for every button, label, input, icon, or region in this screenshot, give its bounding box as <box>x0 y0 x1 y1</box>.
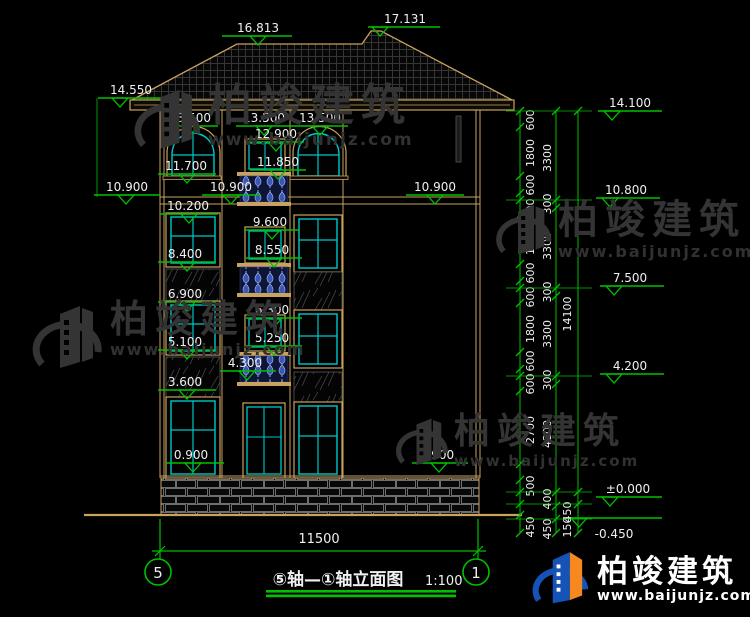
dim-chain-value: 500 <box>524 476 537 497</box>
elevation-marker-triangle <box>606 374 622 383</box>
elevation-marker-value: 6.900 <box>168 287 202 301</box>
elevation-marker-value: 10.200 <box>167 199 209 213</box>
elevation-marker-value: 3.600 <box>168 375 202 389</box>
roof <box>130 31 514 110</box>
dim-chain-value: 600 <box>524 199 537 220</box>
elevation-marker-value: 7.500 <box>613 271 647 285</box>
bottom-dim-label: 11500 <box>298 532 339 547</box>
brand-footer: 柏竣建筑 www.baijunjz.com <box>531 549 750 611</box>
dim-chain-value: 450 <box>541 519 554 540</box>
dim-chain-value: 300 <box>541 370 554 391</box>
dim-chain-value: 1800 <box>524 227 537 255</box>
elevation-marker-value: 8.550 <box>255 243 289 257</box>
stone-base <box>84 478 522 515</box>
elevation-marker-value: 13.500 <box>243 111 285 125</box>
dim-chain-value: 1800 <box>524 139 537 167</box>
elevation-marker-value: 5.100 <box>168 335 202 349</box>
elevation-marker-value: 16.813 <box>237 21 279 35</box>
dim-chain-value: 450 <box>524 517 537 538</box>
marble-panel <box>294 272 342 310</box>
elevation-marker-value: 13.500 <box>299 111 341 125</box>
dim-chain-value: 1800 <box>524 315 537 343</box>
elevation-marker-value: 8.400 <box>168 247 202 261</box>
dim-chain-value: 3300 <box>541 232 554 260</box>
brand-name: 柏竣建筑 <box>597 557 750 588</box>
elevation-marker-triangle <box>602 198 618 207</box>
elevation-marker-value: -0.450 <box>595 527 634 541</box>
dim-chain-value: 600 <box>524 374 537 395</box>
elevation-marker-triangle <box>223 195 239 204</box>
elevation-marker-value: 14.100 <box>609 96 651 110</box>
elevation-marker-value: 0.900 <box>420 448 454 462</box>
elevation-marker-value: 5.250 <box>255 331 289 345</box>
dim-chain-value: 3300 <box>541 144 554 172</box>
dim-chain-value: 300 <box>541 194 554 215</box>
elevation-marker-value: 14.550 <box>110 83 152 97</box>
dim-chain-value: 600 <box>524 110 537 131</box>
dim-chain-value: 14100 <box>561 297 574 332</box>
elevation-marker-value: 4.200 <box>613 359 647 373</box>
svg-text:1: 1 <box>471 564 481 582</box>
elevation-marker-value: 13.500 <box>169 111 211 125</box>
elevation-marker-triangle <box>118 195 134 204</box>
title-text: ⑤轴—①轴立面图 <box>273 569 404 590</box>
elevation-marker-value: 0.900 <box>174 448 208 462</box>
elevation-marker-value: 10.900 <box>106 180 148 194</box>
axis-bubble-1: 1 <box>463 559 489 585</box>
brand-logo-icon <box>531 549 593 611</box>
axis-bubble-5: 5 <box>145 559 171 585</box>
brand-site: www.baijunjz.com <box>597 588 750 604</box>
dim-chain-value: 4200 <box>541 420 554 448</box>
dim-chain-value: 600 <box>524 263 537 284</box>
downspout <box>456 116 461 162</box>
svg-text:5: 5 <box>153 564 163 582</box>
elevation-marker-triangle <box>431 463 447 472</box>
elevation-marker-value: 10.900 <box>210 180 252 194</box>
elevation-marker-value: 6.300 <box>255 303 289 317</box>
right-bay-windows <box>290 127 348 479</box>
elevation-marker-value: 10.900 <box>414 180 456 194</box>
title-scale: 1:100 <box>425 574 462 589</box>
marble-panel <box>294 372 342 402</box>
elevation-marker-value: ±0.000 <box>606 482 650 496</box>
elevation-marker-value: 11.850 <box>257 155 299 169</box>
elevation-marker-value: 4.300 <box>228 356 262 370</box>
dim-chain-value: 3300 <box>541 320 554 348</box>
elevation-marker-triangle <box>606 286 622 295</box>
elevation-marker-value: 12.900 <box>255 127 297 141</box>
elevation-marker-triangle <box>604 111 620 120</box>
elevation-marker-triangle <box>112 98 128 107</box>
dim-chain-value: 600 <box>524 175 537 196</box>
dim-chain-value: 600 <box>524 287 537 308</box>
drawing-title: ⑤轴—①轴立面图 1:100 <box>266 569 462 597</box>
dim-chain-value: 150 <box>561 517 574 538</box>
elevation-marker-triangle <box>427 195 443 204</box>
elevation-marker-value: 9.600 <box>253 215 287 229</box>
cad-elevation-screenshot: 16.81317.13114.55013.50013.50013.50012.9… <box>0 0 750 617</box>
dim-chain-value: 300 <box>541 282 554 303</box>
balcony <box>237 263 291 297</box>
elevation-marker-value: 11.700 <box>165 159 207 173</box>
elevation-marker-value: 10.800 <box>605 183 647 197</box>
elevation-drawing: 16.81317.13114.55013.50013.50013.50012.9… <box>0 0 750 617</box>
elevation-marker-value: 17.131 <box>384 12 426 26</box>
elevation-marker-triangle <box>602 497 618 506</box>
dim-chain-value: 2700 <box>524 416 537 444</box>
dim-chain-value: 600 <box>524 351 537 372</box>
